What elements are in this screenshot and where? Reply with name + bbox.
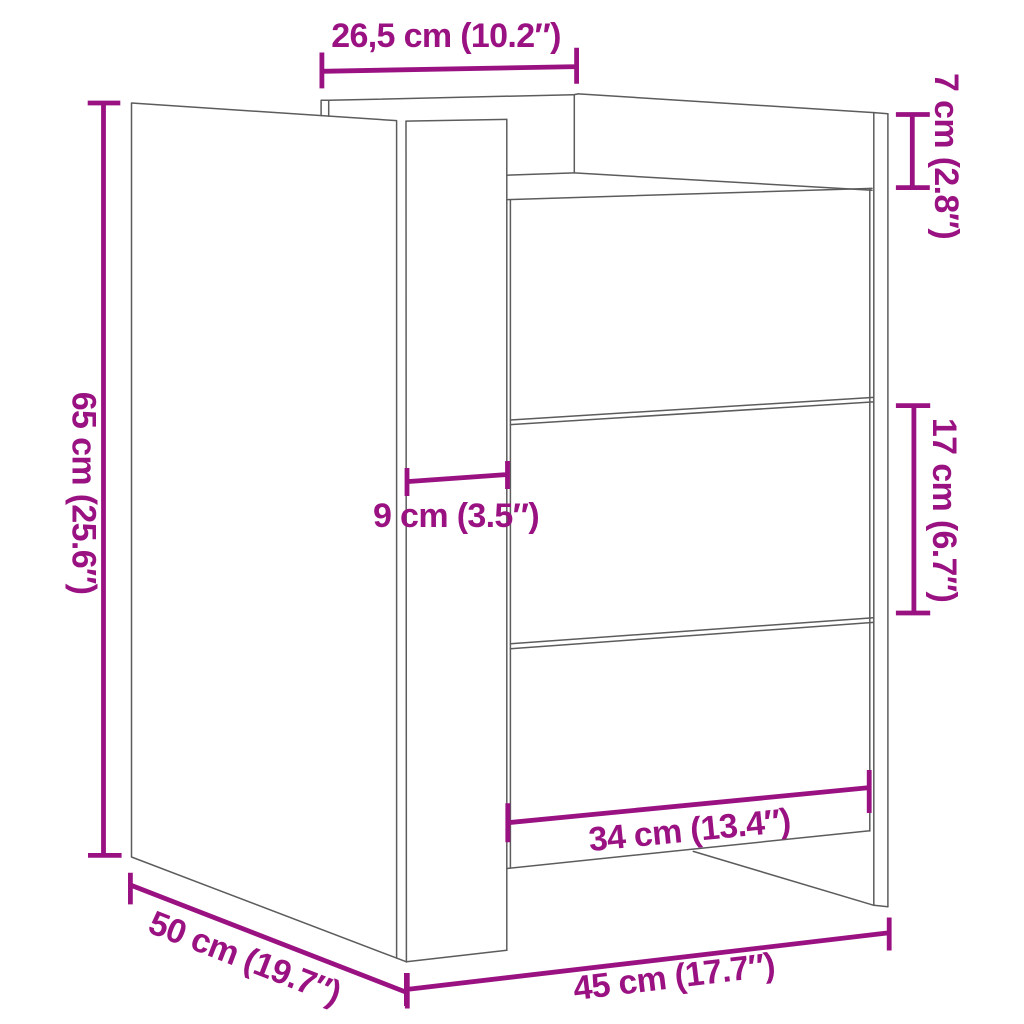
svg-text:26,5 cm (10.2″): 26,5 cm (10.2″) [331, 17, 561, 55]
svg-text:17 cm (6.7″): 17 cm (6.7″) [925, 418, 963, 602]
svg-text:9 cm (3.5″): 9 cm (3.5″) [373, 497, 539, 535]
svg-text:7 cm (2.8″): 7 cm (2.8″) [927, 73, 965, 239]
svg-text:65 cm (25.6″): 65 cm (25.6″) [64, 392, 102, 595]
